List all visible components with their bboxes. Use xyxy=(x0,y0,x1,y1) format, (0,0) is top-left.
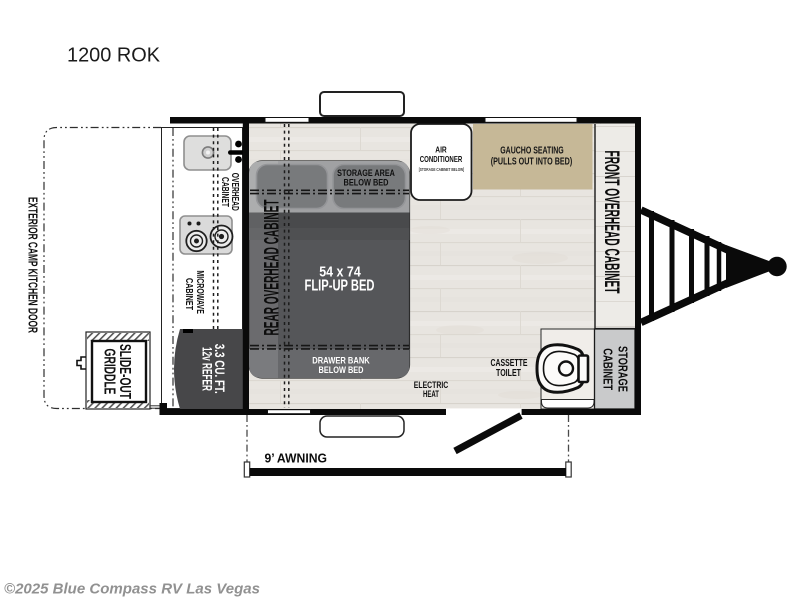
svg-text:REAR OVERHEAD CABINET: REAR OVERHEAD CABINET xyxy=(261,199,284,335)
svg-text:CONDITIONER: CONDITIONER xyxy=(420,154,463,164)
svg-text:[STORAGE CABINET BELOW]: [STORAGE CABINET BELOW] xyxy=(419,167,465,173)
svg-text:CABINET: CABINET xyxy=(601,348,615,390)
svg-text:EXTERIOR CAMP KITCHEN DOOR: EXTERIOR CAMP KITCHEN DOOR xyxy=(26,197,41,333)
svg-text:HEAT: HEAT xyxy=(423,389,439,400)
svg-text:FLIP-UP BED: FLIP-UP BED xyxy=(305,277,375,294)
svg-text:STORAGE: STORAGE xyxy=(615,346,629,392)
svg-text:CABINET: CABINET xyxy=(183,278,195,310)
svg-text:9’ AWNING: 9’ AWNING xyxy=(265,451,328,466)
svg-text:FRONT OVERHEAD CABINET: FRONT OVERHEAD CABINET xyxy=(600,151,623,294)
svg-text:BELOW BED: BELOW BED xyxy=(319,365,364,375)
svg-text:TOILET: TOILET xyxy=(496,368,522,379)
svg-text:12v REFER: 12v REFER xyxy=(200,347,216,391)
svg-text:STORAGE AREA: STORAGE AREA xyxy=(337,168,395,178)
svg-text:CABINET: CABINET xyxy=(219,177,230,207)
svg-text:SLIDE-OUT: SLIDE-OUT xyxy=(116,344,133,399)
svg-text:BELOW BED: BELOW BED xyxy=(344,178,389,188)
svg-text:©2025 Blue Compass RV Las Vega: ©2025 Blue Compass RV Las Vegas xyxy=(4,582,260,598)
svg-text:GRIDDLE: GRIDDLE xyxy=(100,349,117,395)
svg-text:1200 ROK: 1200 ROK xyxy=(67,44,160,67)
svg-text:(PULLS OUT INTO BED): (PULLS OUT INTO BED) xyxy=(491,156,573,167)
svg-text:GAUCHO SEATING: GAUCHO SEATING xyxy=(500,145,564,156)
